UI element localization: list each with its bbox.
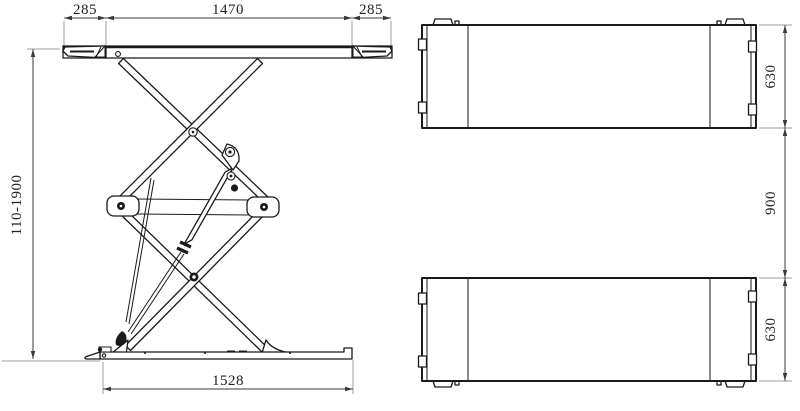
plan-clip <box>749 41 757 52</box>
plan-platform-bottom <box>419 278 757 387</box>
dim-label-right-ramp: 285 <box>359 2 383 18</box>
knee-link-bar <box>137 199 250 200</box>
scissor-mechanism <box>107 59 290 356</box>
plan-clip <box>749 104 757 115</box>
dimension-top-widths: 285 1470 285 <box>64 2 391 20</box>
dimension-base-length: 1528 <box>103 373 353 391</box>
lower-arm-foot-right <box>262 340 290 353</box>
dim-label-bottom-platform-width: 630 <box>763 318 779 342</box>
dim-label-top-platform-width: 630 <box>763 65 779 89</box>
platform-ramp-right <box>352 46 392 58</box>
dim-label-platform-length: 1470 <box>212 2 244 18</box>
scissor-lift-drawing: 285 1470 285 110-1900 1528 <box>0 0 800 411</box>
dim-label-lift-height: 110-1900 <box>9 175 25 236</box>
plan-clip <box>419 102 427 113</box>
dim-label-base-length: 1528 <box>212 373 244 389</box>
plan-platform-top <box>419 19 757 128</box>
plan-top-view: 630 900 630 <box>419 19 793 387</box>
dim-label-platform-gap: 900 <box>763 191 779 215</box>
plan-clip <box>749 291 757 302</box>
base-ramp-left <box>85 352 100 359</box>
dimension-lift-height: 110-1900 <box>9 49 35 359</box>
dimension-plan-widths: 630 900 630 <box>759 25 792 381</box>
plan-clip <box>749 354 757 365</box>
extension-lines-side <box>2 21 391 394</box>
lift-platform <box>63 46 392 58</box>
plan-clip <box>419 293 427 304</box>
plan-clip <box>419 39 427 50</box>
technical-drawing-page: 285 1470 285 110-1900 1528 <box>0 0 800 411</box>
platform-ramp-left <box>63 46 106 58</box>
side-elevation-view: 285 1470 285 110-1900 1528 <box>2 2 392 394</box>
platform-bolt <box>116 52 121 57</box>
dim-label-left-ramp: 285 <box>73 2 97 18</box>
plan-clip <box>419 356 427 367</box>
